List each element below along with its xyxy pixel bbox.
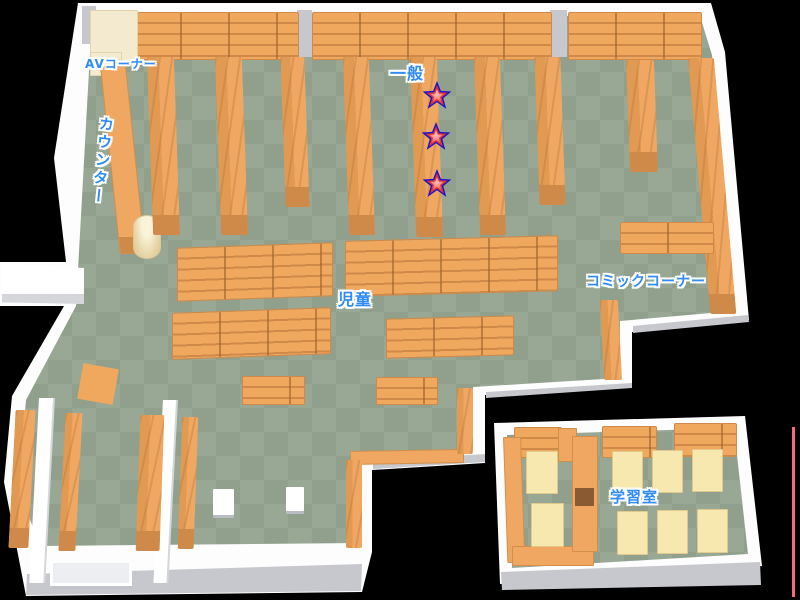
star-marker-3[interactable] (422, 169, 452, 199)
top-wall-gap-1 (297, 10, 312, 57)
study-table-left-1 (526, 451, 558, 494)
children-shelf-a1 (177, 242, 333, 301)
general-shelf-row-8 (626, 60, 658, 172)
general-shelf-row-7 (534, 57, 565, 205)
right-edge-line (792, 427, 795, 597)
children-shelf-b2 (386, 315, 514, 358)
study-table-left-2 (531, 503, 564, 547)
children-bench-1 (242, 376, 305, 405)
label-children: 児童 (338, 286, 372, 310)
children-bench-2 (376, 377, 438, 405)
kiosk-box-2 (286, 487, 304, 511)
notch-left-shelf (346, 460, 362, 548)
study-table-r1c3 (692, 449, 723, 492)
top-wall-shelf-3 (568, 12, 702, 60)
top-wall-shelf-2 (312, 12, 552, 60)
study-table-r2c1 (617, 511, 648, 555)
label-comic-corner: コミックコーナー (586, 271, 706, 291)
bottomleft-shelf-3 (136, 415, 165, 551)
notch-right-shelf (457, 388, 473, 454)
star-marker-2[interactable] (421, 122, 451, 152)
left-entrance-wall (2, 264, 84, 304)
library-map: AVコーナー カウンター 一般 児童 コミックコーナー 学習室 (0, 0, 800, 600)
label-av-corner: AVコーナー (85, 55, 157, 72)
entrance-door (50, 560, 132, 586)
kiosk-box-1 (213, 489, 234, 515)
reading-table (77, 363, 119, 405)
star-marker-1[interactable] (422, 81, 452, 111)
top-wall-shelf-1 (133, 12, 299, 60)
top-wall-gap-2 (550, 10, 567, 57)
label-general: 一般 (390, 60, 424, 84)
children-shelf-b1 (172, 307, 331, 360)
study-table-r2c3 (697, 509, 728, 553)
notch-bottom-shelf (350, 449, 464, 465)
study-table-r2c2 (657, 510, 688, 554)
comic-corner-shelf (620, 222, 714, 254)
children-shelf-a2 (345, 235, 558, 297)
label-study-room: 学習室 (610, 486, 658, 507)
study-divider-gap (575, 488, 594, 506)
